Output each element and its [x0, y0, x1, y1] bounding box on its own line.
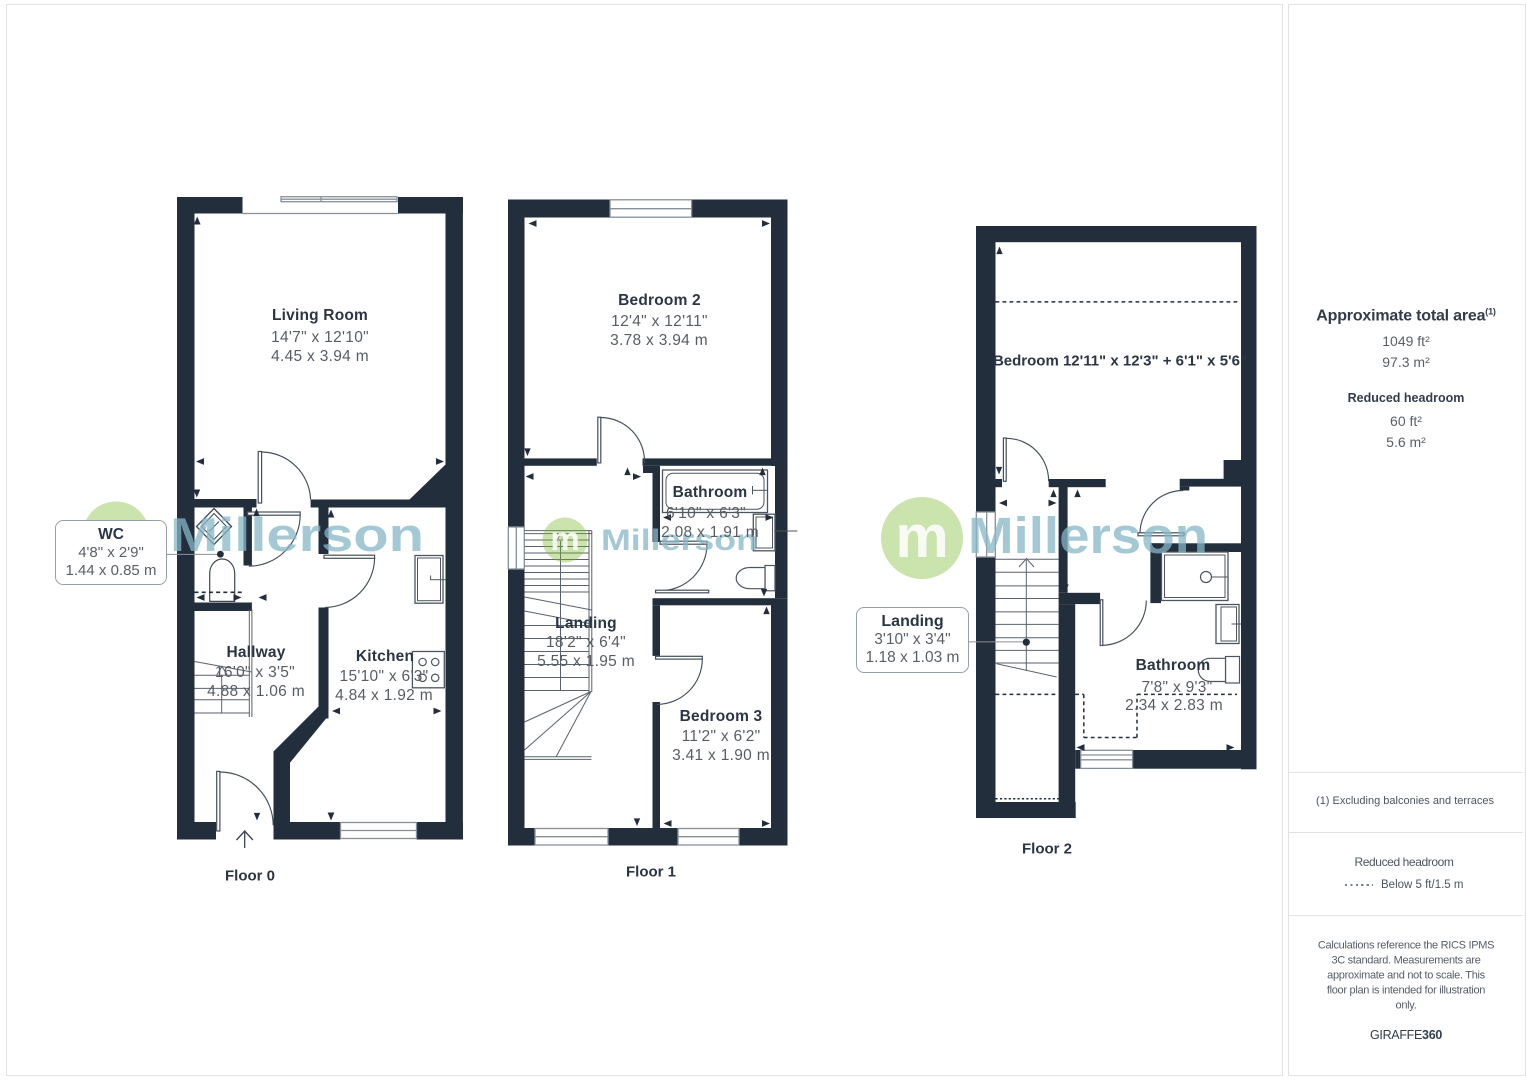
svg-text:m: m [550, 520, 579, 557]
svg-text:Millerson: Millerson [170, 508, 424, 561]
svg-text:m: m [895, 503, 948, 570]
svg-text:Millerson: Millerson [968, 507, 1208, 564]
